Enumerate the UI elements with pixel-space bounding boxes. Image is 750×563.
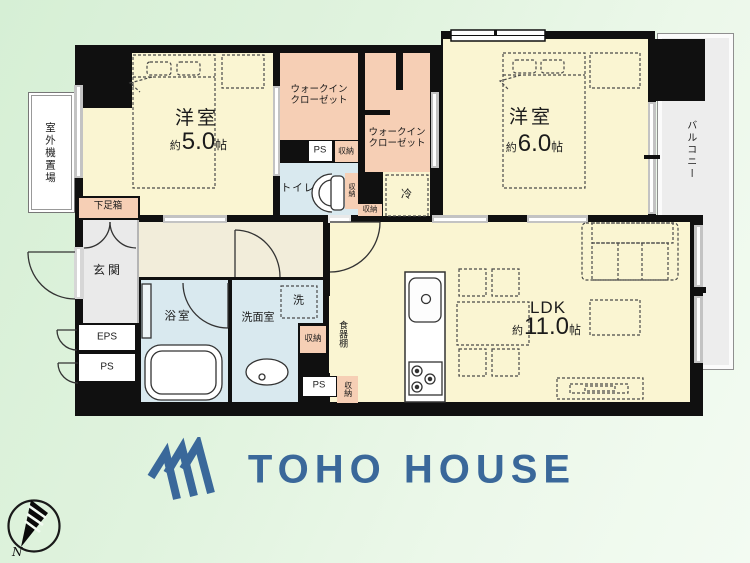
toho-house-logo-text: TOHO HOUSE	[248, 448, 576, 493]
ldk-area: 約11.0帖	[512, 313, 582, 341]
chair-icon	[492, 269, 519, 296]
storage3-label: 収納	[363, 206, 378, 215]
ps2-label: PS	[100, 361, 113, 373]
washer-label: 洗	[293, 295, 305, 308]
kitchen-counter-icon	[405, 272, 445, 402]
storage5-label: 収納	[343, 381, 352, 397]
storage1-label: 収納	[338, 146, 354, 155]
bedroom2-area: 約6.0帖	[506, 130, 564, 158]
outdoor-unit-label: 室外機置場	[44, 122, 56, 185]
balcony-label: バルコニー	[684, 120, 696, 180]
fixtures	[142, 174, 445, 402]
bathroom-label: 浴室	[165, 310, 192, 323]
chair-icon	[492, 349, 519, 376]
tv-board-icon	[557, 378, 643, 399]
wall-stubs	[365, 53, 403, 115]
chair-icon	[459, 349, 486, 376]
eps-label: EPS	[97, 331, 117, 343]
toho-house-logo-icon	[146, 437, 218, 507]
floor-plan-page: 洋室 約5.0帖 洋室 約6.0帖 LDK 約11.0帖 ウォークインクローゼッ…	[0, 0, 750, 563]
bathtub-icon	[142, 284, 222, 400]
low-table-icon	[590, 300, 640, 335]
bedroom2-name: 洋室	[509, 107, 553, 129]
walk-in-closet1-label: ウォークインクローゼット	[290, 85, 347, 107]
toilet-icon	[312, 174, 344, 212]
side-table2-icon	[590, 53, 640, 88]
toilet-label: トイレ	[281, 182, 316, 194]
walk-in-closet2-label: ウォークインクローゼット	[368, 128, 425, 150]
side-table1-icon	[222, 55, 264, 88]
compass-north-label: N	[12, 545, 23, 559]
washbasin-icon	[246, 359, 288, 385]
ps1-label: PS	[314, 146, 327, 157]
sofa-icon	[582, 223, 678, 280]
entrance-label: 玄関	[93, 264, 123, 278]
cupboard-label: 食器棚	[338, 321, 348, 348]
ps3-label: PS	[313, 381, 326, 392]
bedroom1-area: 約5.0帖	[170, 128, 228, 156]
storage2-label: 収納	[347, 183, 355, 197]
storage4-label: 収納	[304, 334, 321, 344]
fridge-label: 冷	[401, 189, 413, 202]
shoe-box-label: 下足箱	[94, 202, 123, 213]
washroom-label: 洗面室	[242, 312, 275, 325]
chair-icon	[459, 269, 486, 296]
bedroom1-name: 洋室	[175, 108, 219, 130]
